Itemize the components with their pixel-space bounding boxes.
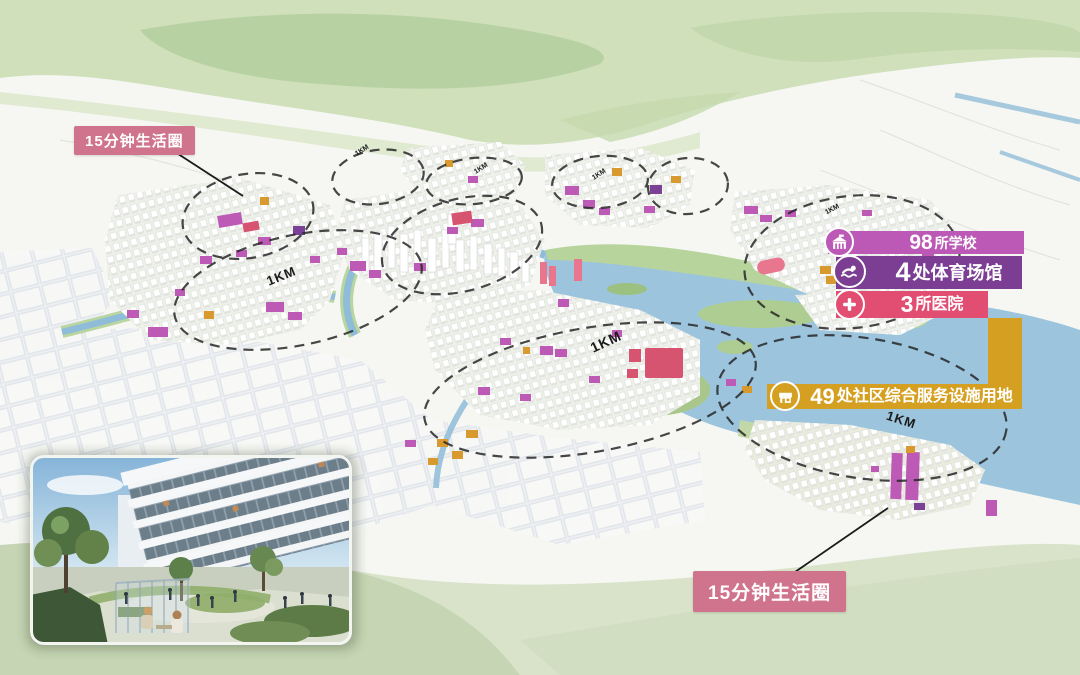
urban-plan-infographic: 1KM 1KM 1KM 1KM 1KM 1KM 1KM [0, 0, 1080, 675]
life-circle-label-top-left: 15分钟生活圈 [74, 126, 195, 155]
life-circle-label-bottom-right: 15分钟生活圈 [693, 571, 846, 612]
map-canvas: 1KM 1KM 1KM 1KM 1KM 1KM 1KM [0, 0, 1080, 675]
